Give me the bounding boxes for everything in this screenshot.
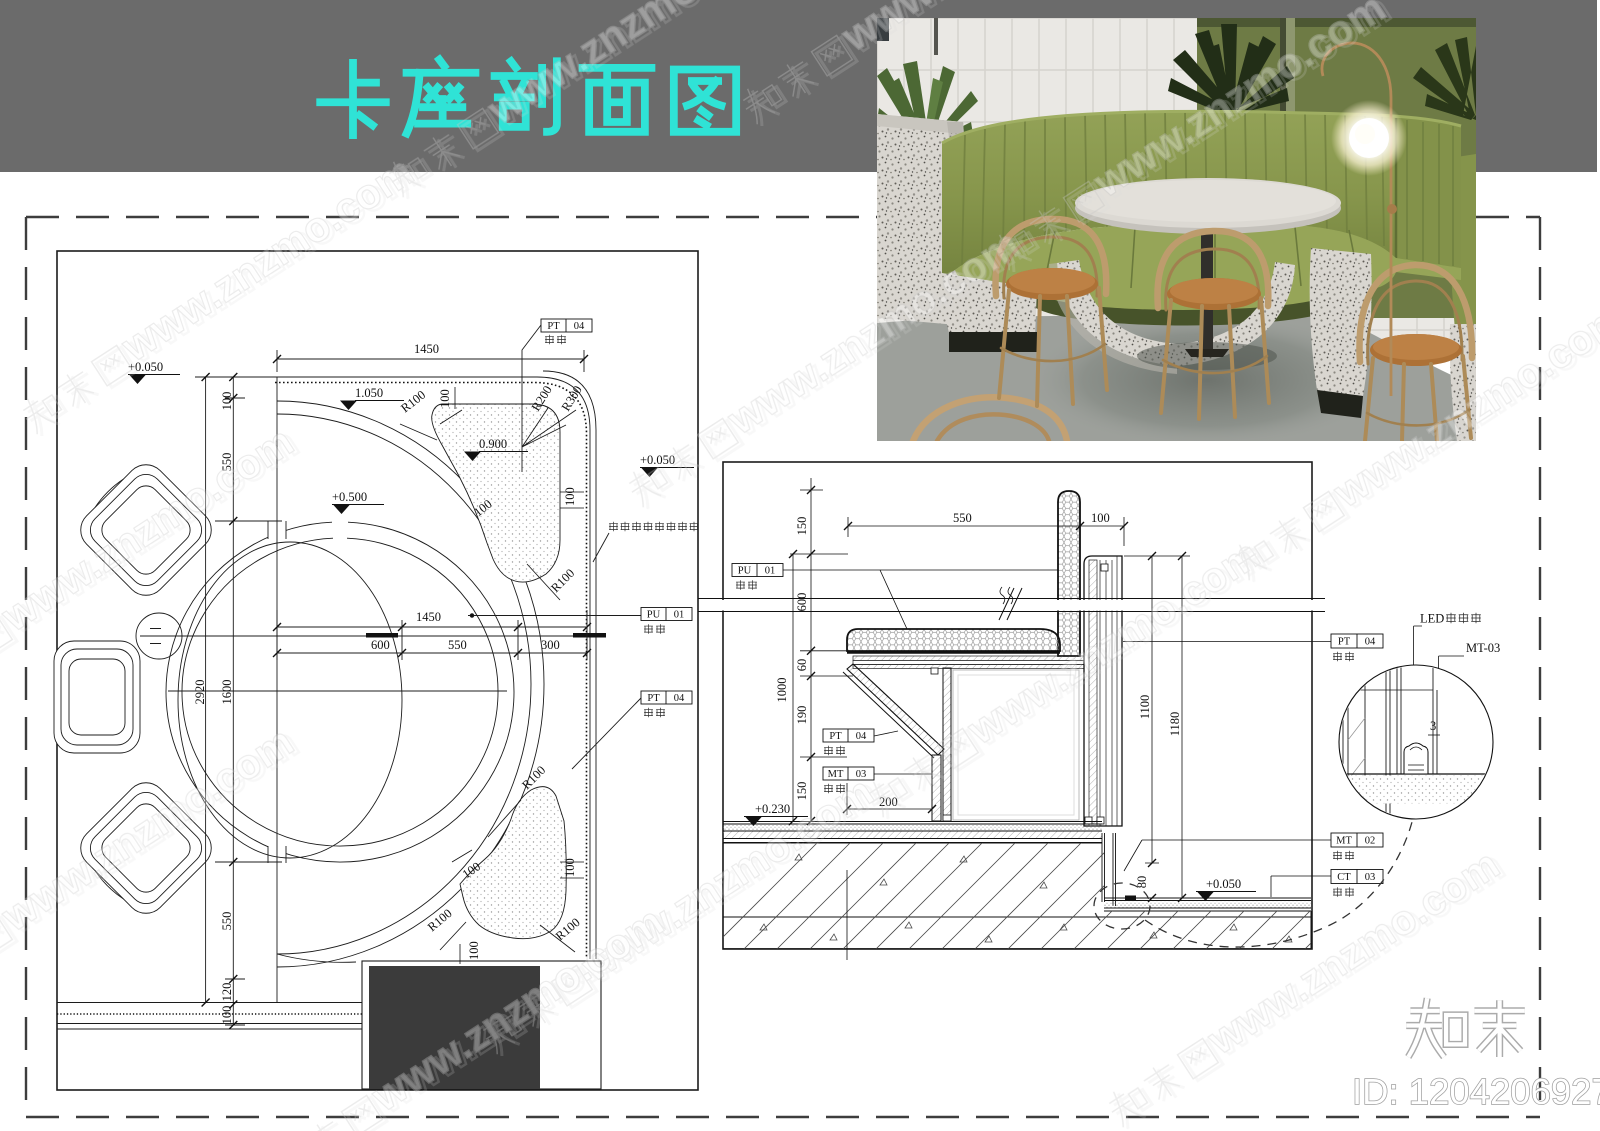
svg-text:ID: 1204206927: ID: 1204206927 xyxy=(1352,1071,1600,1112)
